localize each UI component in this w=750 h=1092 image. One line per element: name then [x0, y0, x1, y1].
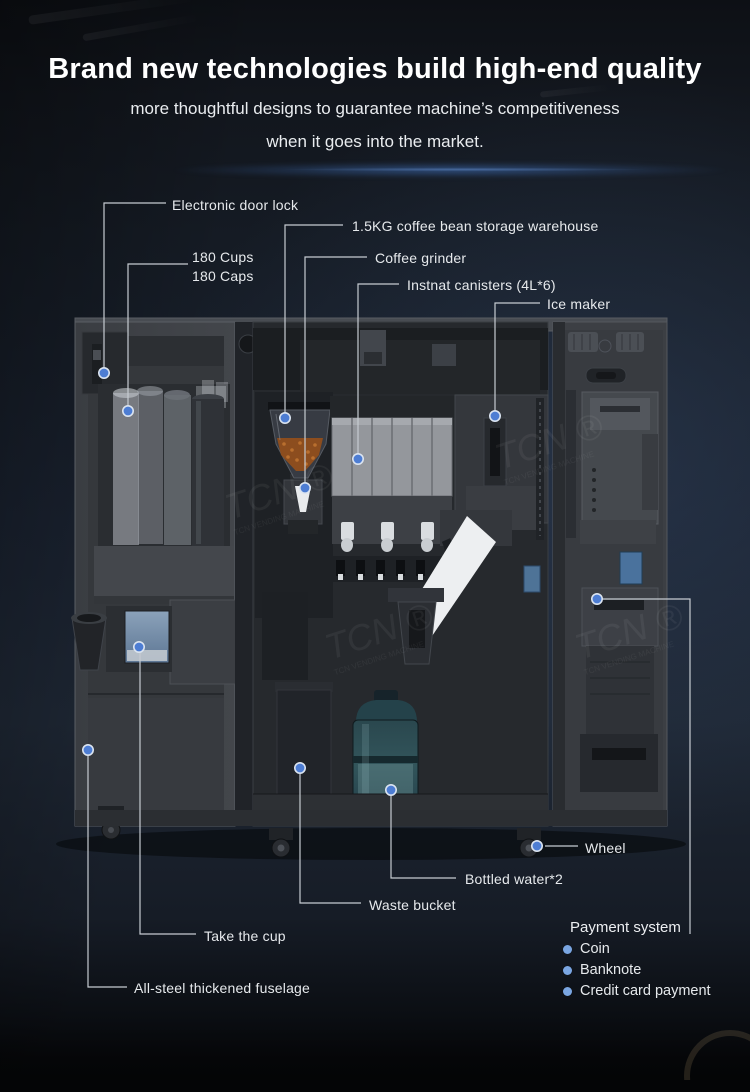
door-screen [620, 552, 642, 584]
label-electronic-door-lock: Electronic door lock [172, 196, 298, 215]
page: Brand new technologies build high-end qu… [0, 0, 750, 1092]
payment-item-banknote: Banknote [563, 962, 711, 978]
label-coffee-grinder: Coffee grinder [375, 249, 466, 268]
label-cups-line2: 180 Caps [192, 267, 254, 286]
label-fuselage: All-steel thickened fuselage [134, 979, 310, 998]
payment-item-label: Credit card payment [580, 983, 711, 999]
bottom-black-band [0, 1080, 750, 1092]
label-waste-bucket: Waste bucket [369, 896, 456, 915]
label-cups-line1: 180 Cups [192, 248, 254, 267]
dot-canisters [353, 454, 363, 464]
payment-item-credit-card: Credit card payment [563, 983, 711, 999]
dot-waste-bucket [295, 763, 305, 773]
cup-dispenser-tubes [98, 380, 230, 548]
center-cabinet [253, 322, 548, 826]
bullet-icon [563, 987, 572, 996]
instant-canister-bank [332, 418, 452, 496]
dot-payment [592, 594, 602, 604]
payment-system-title: Payment system [570, 919, 681, 936]
top-bracket [432, 344, 456, 366]
label-ice-maker: Ice maker [547, 295, 610, 314]
label-take-cup: Take the cup [204, 927, 286, 946]
label-wheel: Wheel [585, 839, 626, 858]
cup-pickup-station [106, 600, 252, 684]
label-bottled-water: Bottled water*2 [465, 870, 563, 889]
dot-bottled-water [386, 785, 396, 795]
door-handle [586, 368, 626, 383]
cabinet-bottom-rail [75, 810, 667, 826]
dot-ice-maker [490, 411, 500, 421]
bullet-icon [563, 966, 572, 975]
payment-system-list: Coin Banknote Credit card payment [563, 941, 711, 999]
upper-waste-box [262, 592, 308, 680]
label-canisters: Instnat canisters (4L*6) [407, 276, 556, 295]
dot-bean-storage [280, 413, 290, 423]
payment-item-coin: Coin [563, 941, 711, 957]
tube-base-shelf [94, 546, 234, 602]
door-hinge-column [235, 322, 253, 826]
inner-screen [524, 566, 540, 592]
label-bean-storage: 1.5KG coffee bean storage warehouse [352, 217, 598, 236]
vending-machine-illustration: TCN ® TCN VENDING MACHINE TCN ® TCN VEND… [56, 318, 691, 860]
left-door [71, 322, 252, 839]
payment-item-label: Coin [580, 941, 610, 957]
dot-grinder [300, 483, 310, 493]
dot-wheel [532, 841, 542, 851]
dot-cups [123, 406, 133, 416]
right-door [553, 322, 667, 826]
waste-bucket-unit [275, 682, 333, 794]
payment-item-label: Banknote [580, 962, 641, 978]
dot-door-lock [99, 368, 109, 378]
dot-take-cup [134, 642, 144, 652]
dot-fuselage [83, 745, 93, 755]
label-cups: 180 Cups 180 Caps [192, 248, 254, 286]
bullet-icon [563, 945, 572, 954]
